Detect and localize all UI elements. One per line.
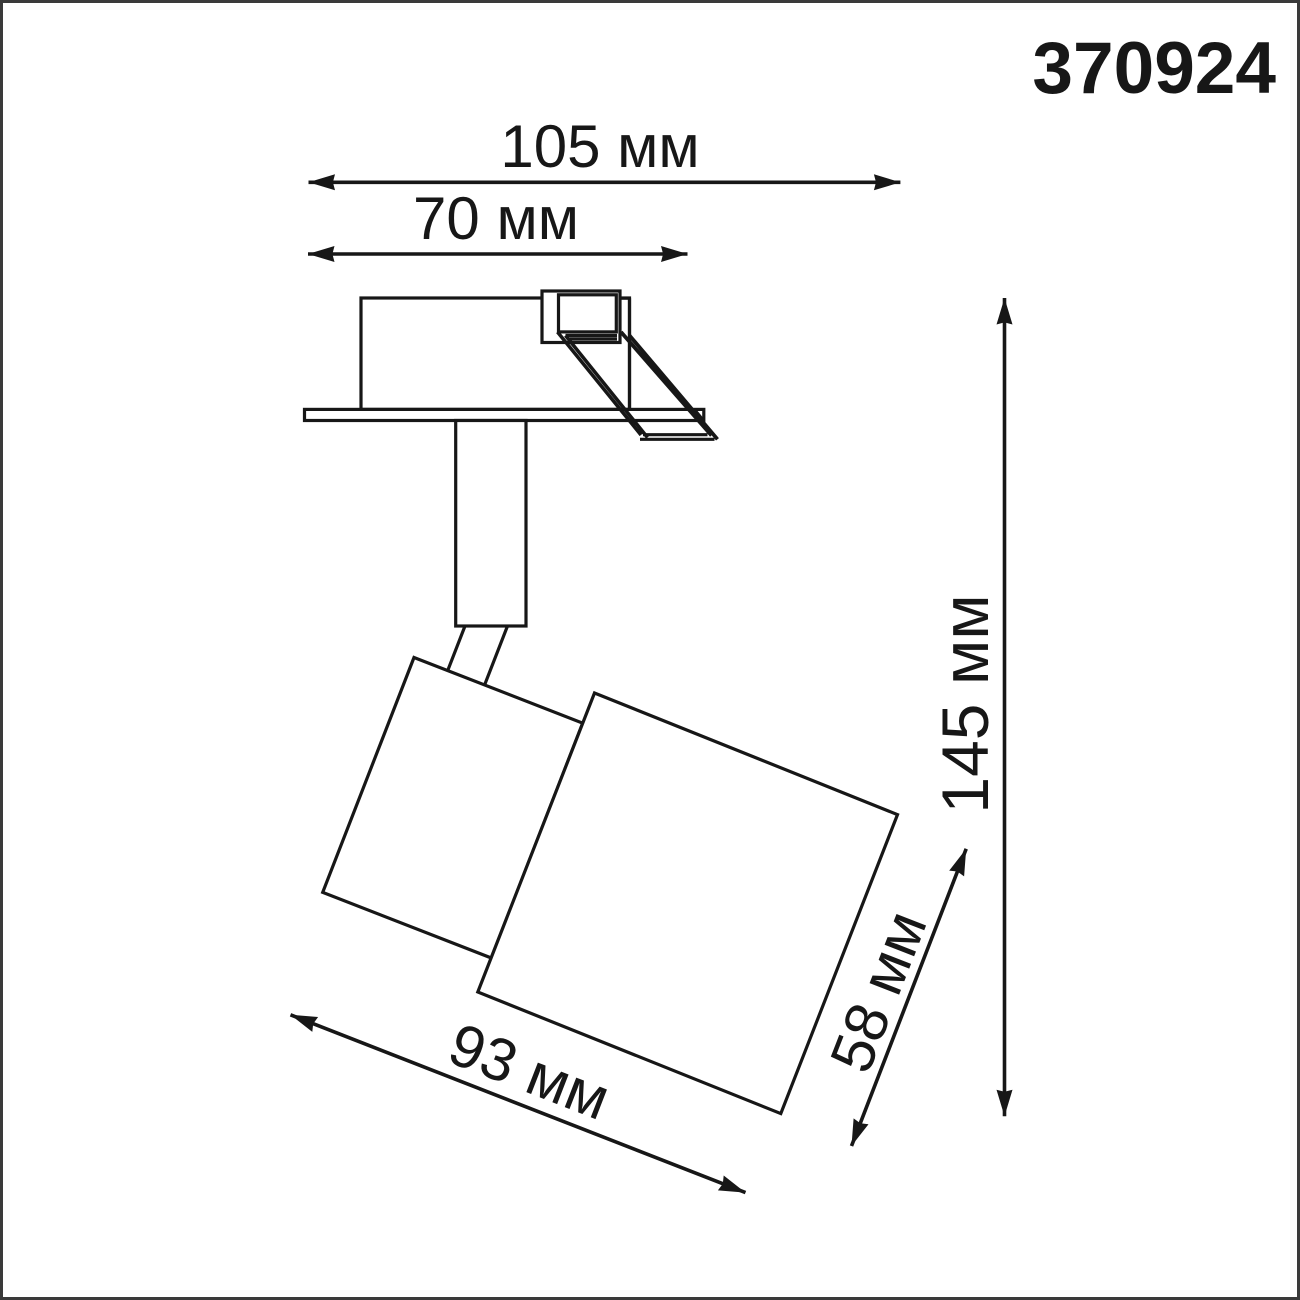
svg-text:145 мм: 145 мм	[928, 594, 1002, 813]
svg-text:370924: 370924	[1032, 28, 1276, 109]
svg-text:70 мм: 70 мм	[413, 185, 579, 252]
svg-text:105 мм: 105 мм	[500, 113, 699, 180]
